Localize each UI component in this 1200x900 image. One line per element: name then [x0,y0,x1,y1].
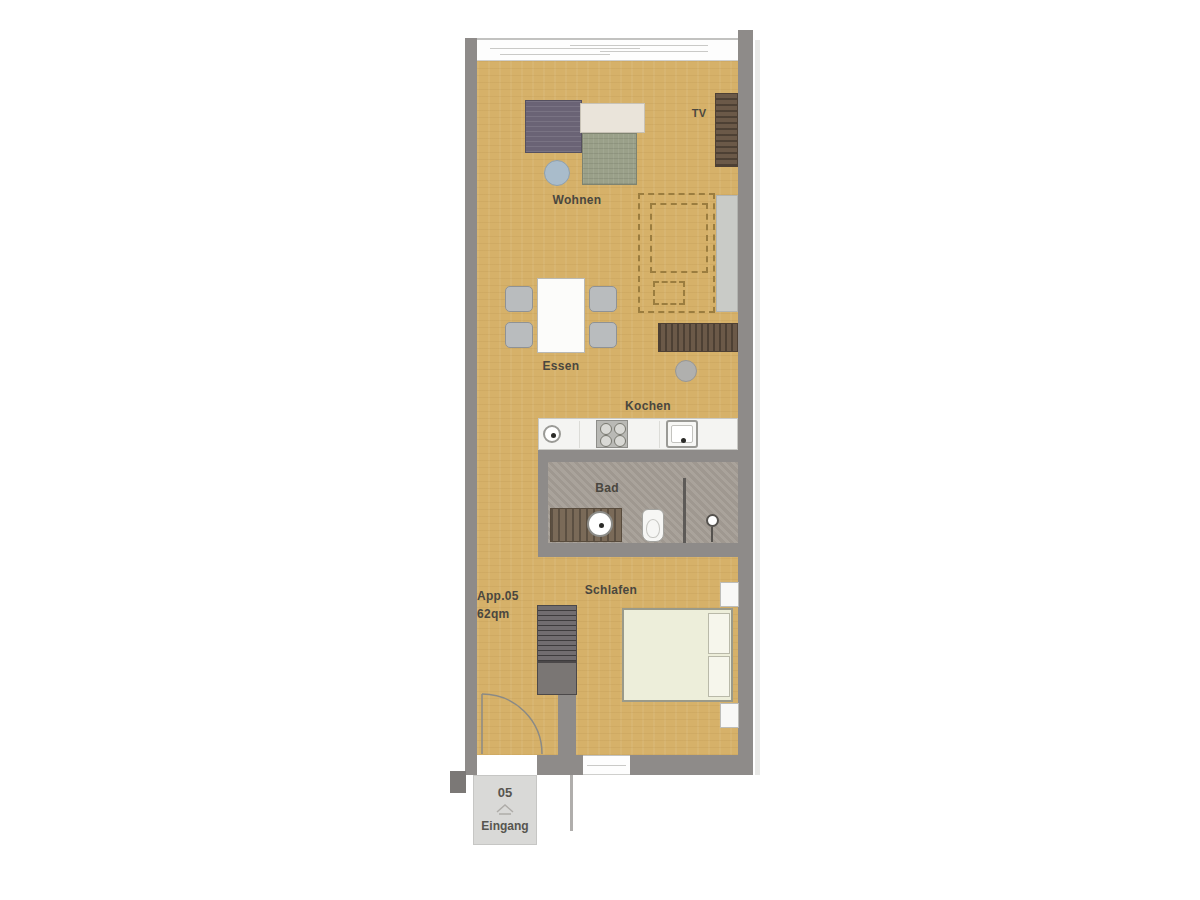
entrance-unit-number: 05 [474,785,536,800]
bed-icon [622,608,733,702]
burner-icon [614,423,626,435]
wall-entry-partition [558,695,576,755]
house-icon [495,803,515,815]
room-label-kitchen: Kochen [616,399,680,413]
burner-icon [600,435,612,447]
wall-left [465,38,477,775]
burner-icon [614,435,626,447]
window-band-top [477,38,738,61]
entry-opening [477,755,537,775]
burner-icon [600,423,612,435]
chair-icon [505,286,533,312]
window-band-bottom [583,755,630,775]
wall-right [738,30,753,775]
window-line [587,765,626,766]
sofa-chaise-icon [580,103,645,133]
wardrobe-base-icon [537,662,577,695]
wall-kitchen-bath [538,450,738,462]
floorplan-canvas: Wohnen TV Essen Kochen Bad [0,0,1200,900]
wall-recess [716,195,738,312]
unit-id-label: App.05 [477,589,527,603]
toilet-bowl-icon [646,519,660,538]
counter-divider [579,421,580,448]
stool-icon [675,360,697,382]
cooktop-icon [596,420,628,448]
dashed-zone-inner [650,203,708,273]
window-line [500,54,610,55]
entrance-label: Eingang [474,819,536,833]
sofa-green-icon [582,133,637,185]
chair-icon [505,322,533,348]
chair-icon [589,286,617,312]
room-label-bath: Bad [584,481,630,495]
wardrobe-icon [537,605,577,662]
window-line [570,45,708,46]
tv-cabinet-icon [715,93,738,167]
sofa-dark-icon [525,100,582,153]
dining-table-icon [537,278,585,353]
washbasin-icon [587,511,613,537]
site-boundary-line [570,775,573,831]
kitchen-sink-unit-icon [666,420,698,448]
side-table-icon [544,160,570,186]
toilet-icon [642,509,664,542]
window-line [600,51,708,52]
sink-icon [543,425,561,443]
wall-bottom-segment [537,755,583,775]
unit-area-label: 62qm [477,607,527,621]
sideboard-icon [658,323,738,352]
window-line [490,48,640,49]
wall-bottom-segment [630,755,738,775]
tv-label: TV [686,106,712,120]
pillow-icon [708,656,730,697]
door-swing-arc [481,693,543,755]
sink-drain-icon [681,438,686,443]
wall-bath-bottom [538,543,738,557]
sink-drain-icon [551,433,556,438]
wall-stub-outside [450,771,466,793]
room-label-dining: Essen [530,359,592,373]
entrance-block: 05 Eingang [473,775,537,845]
kitchen-counter [538,418,738,450]
nightstand-icon [720,582,739,607]
chair-icon [589,322,617,348]
room-label-living: Wohnen [533,193,621,207]
nightstand-icon [720,703,739,728]
shower-head-icon [706,514,719,527]
basin-drain-icon [599,523,604,528]
shower-stem-icon [711,527,713,542]
shower-partition-wall [683,478,686,543]
dashed-zone-small [653,281,685,305]
pillow-icon [708,613,730,654]
room-label-bedroom: Schlafen [578,583,644,597]
wall-right-shadow [755,40,760,775]
counter-divider [659,421,660,448]
wall-bath-left [538,450,548,557]
